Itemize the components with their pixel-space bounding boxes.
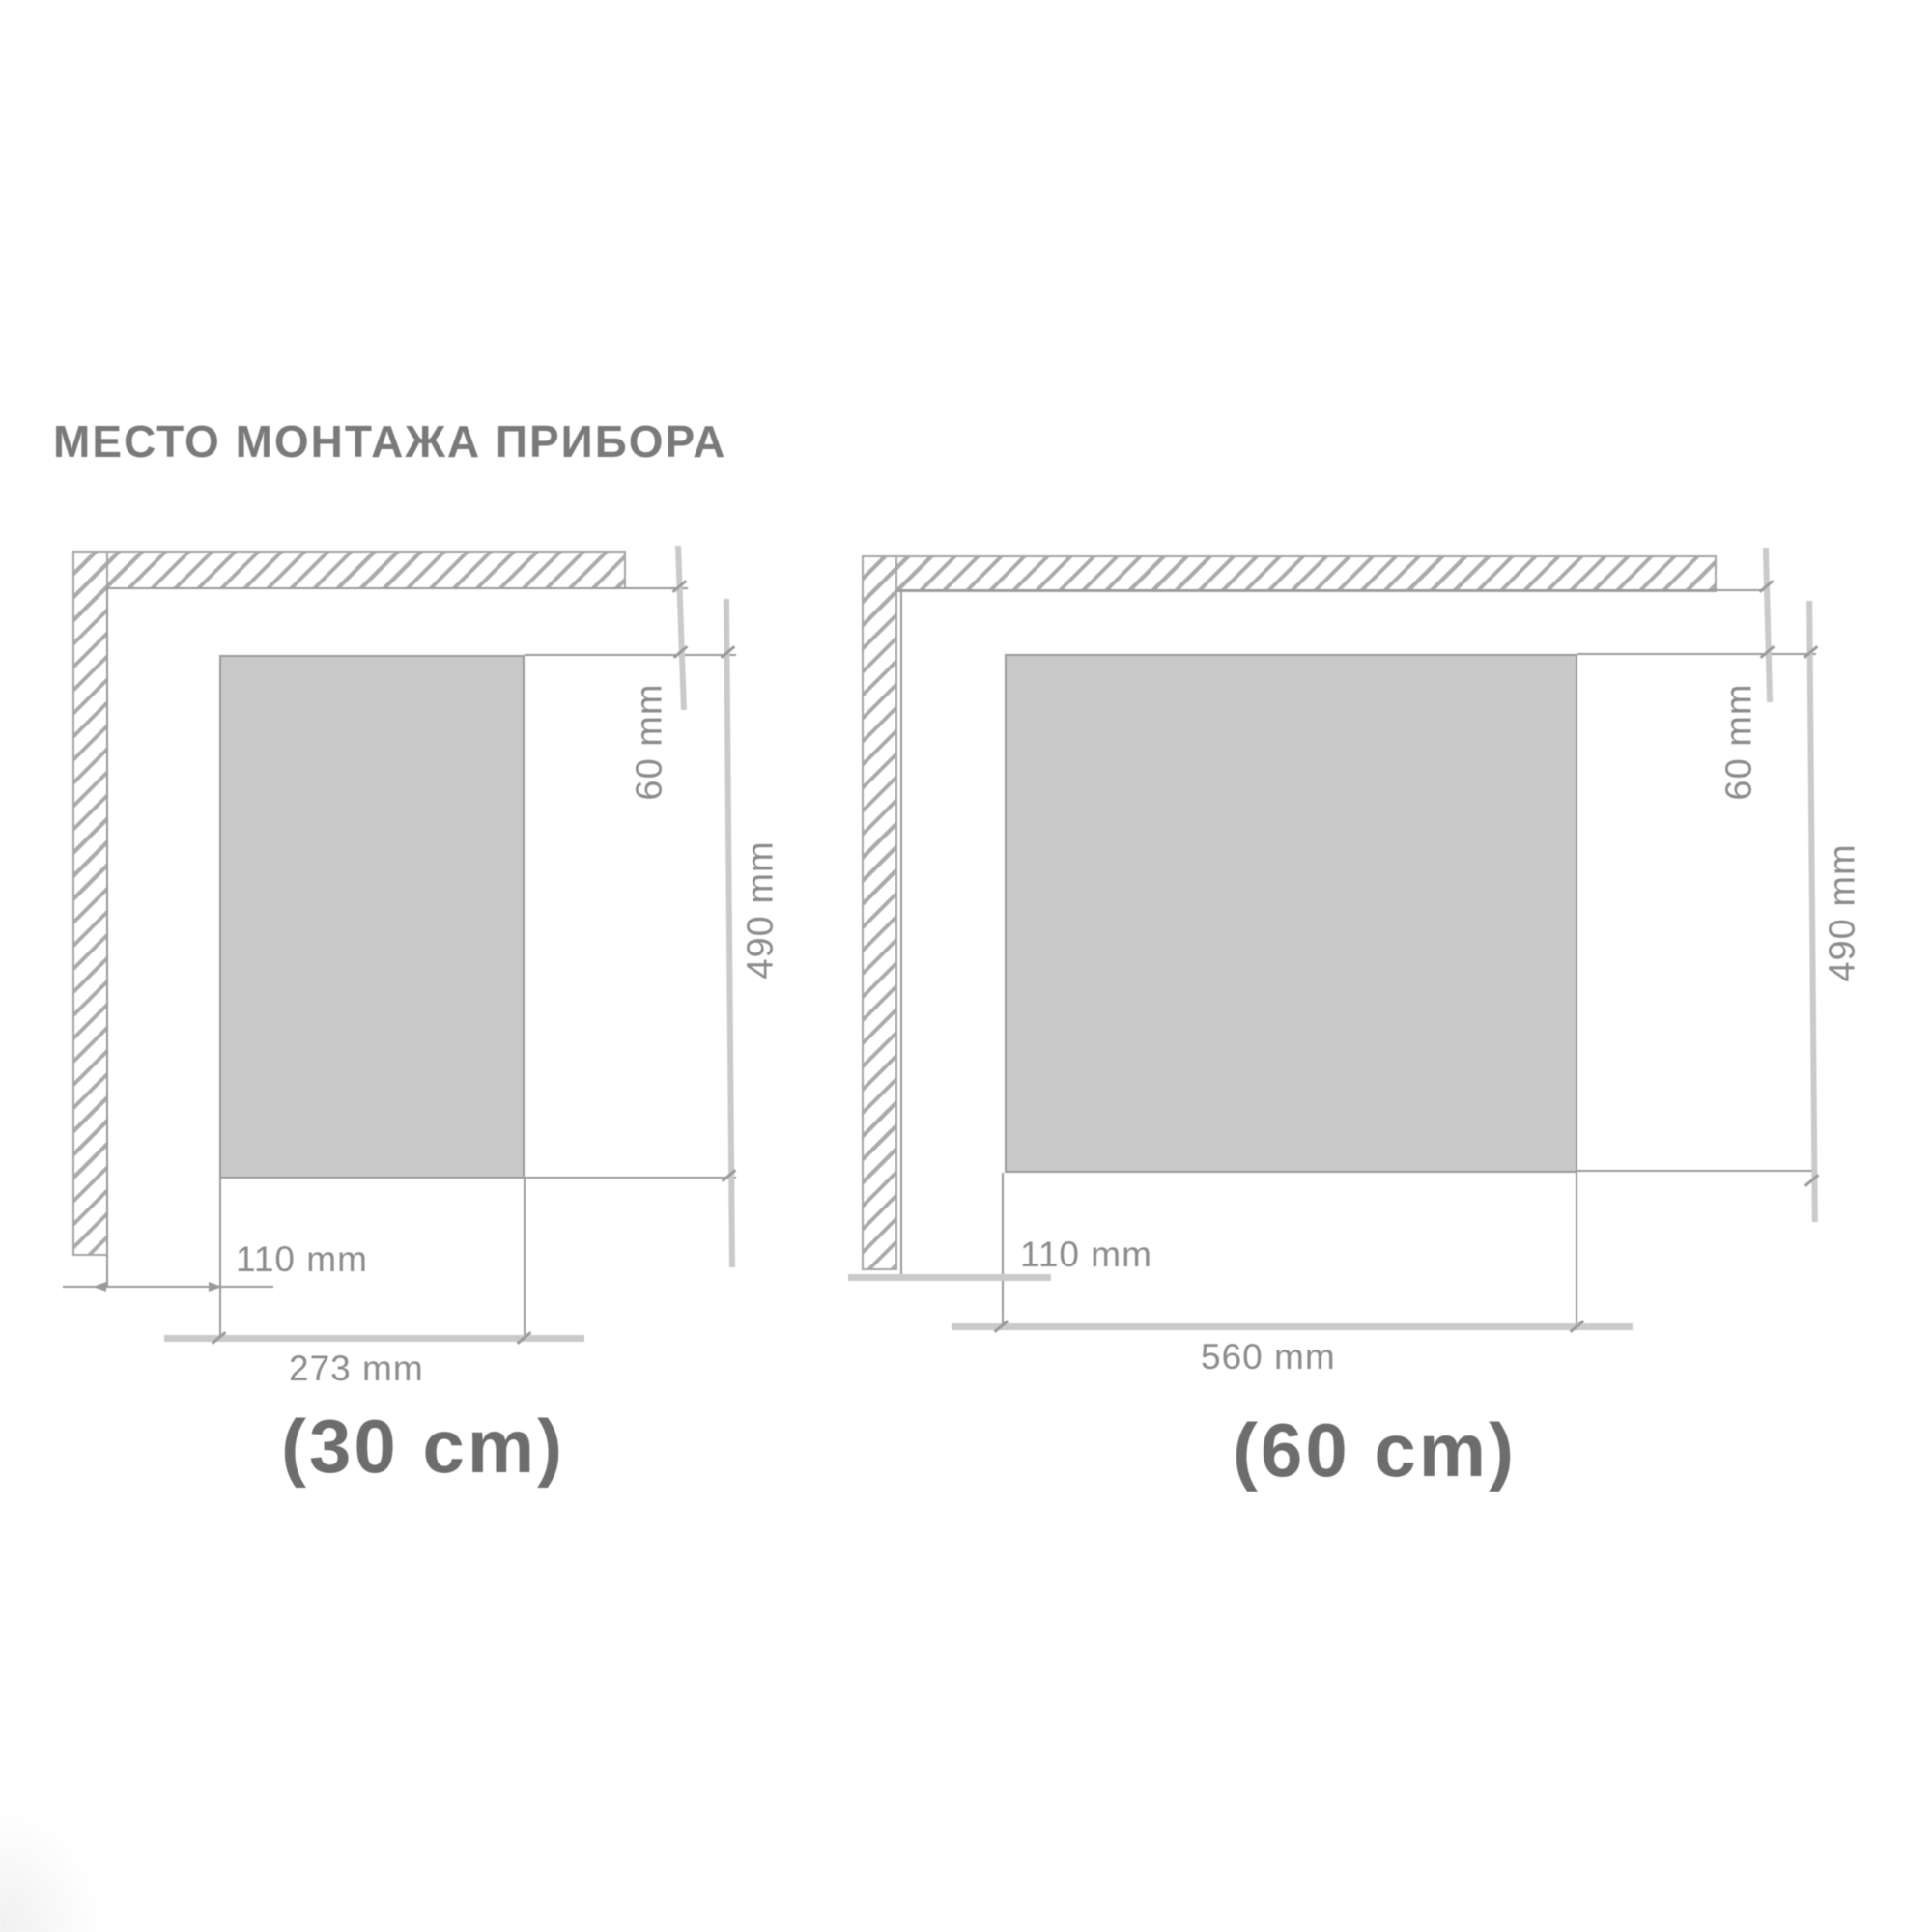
extension-line-left-down: [1002, 1173, 1004, 1327]
dim-arrow-right: [209, 1282, 222, 1292]
dim-line-490mm: [1806, 601, 1818, 1222]
cutout-area: [219, 655, 525, 1179]
label-60mm: 60 mm: [1719, 683, 1761, 800]
extension-line-right-down: [524, 1179, 526, 1341]
caption-30cm: (30 cm): [281, 1403, 565, 1491]
scanned-manual-page: МЕСТО МОНТАЖА ПРИБОРА 60 mm 490 mm 1: [0, 0, 1932, 1932]
dim-line-110mm: [848, 1274, 1051, 1281]
extension-line-right-down: [1576, 1173, 1577, 1327]
wall-hatch-left: [72, 551, 108, 1256]
wall-hatch-top: [862, 555, 1717, 592]
extension-line-left-down: [219, 1179, 221, 1341]
dim-arrow-left: [93, 1282, 106, 1292]
label-110mm: 110 mm: [1020, 1235, 1152, 1275]
wall-hatch-top: [72, 551, 626, 589]
cutout-area: [1005, 654, 1577, 1173]
extension-line-top: [1577, 653, 1816, 655]
label-490mm: 490 mm: [1823, 843, 1864, 981]
wall-hatch-left: [862, 555, 897, 1270]
page-title: МЕСТО МОНТАЖА ПРИБОРА: [53, 415, 726, 468]
label-110mm: 110 mm: [236, 1239, 368, 1280]
extension-line-top: [525, 654, 736, 656]
dim-line-60mm: [675, 546, 687, 710]
scan-corner-shade: [0, 1806, 106, 1932]
label-273mm: 273 mm: [289, 1349, 424, 1389]
countertop-left-edge: [106, 587, 108, 1287]
dim-line-490mm: [724, 599, 735, 1267]
dim-line-60mm: [1763, 548, 1773, 702]
countertop-back-edge: [897, 589, 1770, 591]
label-490mm: 490 mm: [741, 840, 782, 979]
extension-line-bottom: [525, 1177, 736, 1179]
countertop-back-edge: [106, 587, 688, 589]
dim-line-560mm: [952, 1323, 1633, 1330]
label-60mm: 60 mm: [630, 683, 671, 800]
caption-60cm: (60 cm): [1233, 1406, 1517, 1494]
extension-line-bottom: [1577, 1170, 1813, 1172]
label-560mm: 560 mm: [1201, 1337, 1336, 1378]
countertop-left-edge: [900, 589, 902, 1277]
